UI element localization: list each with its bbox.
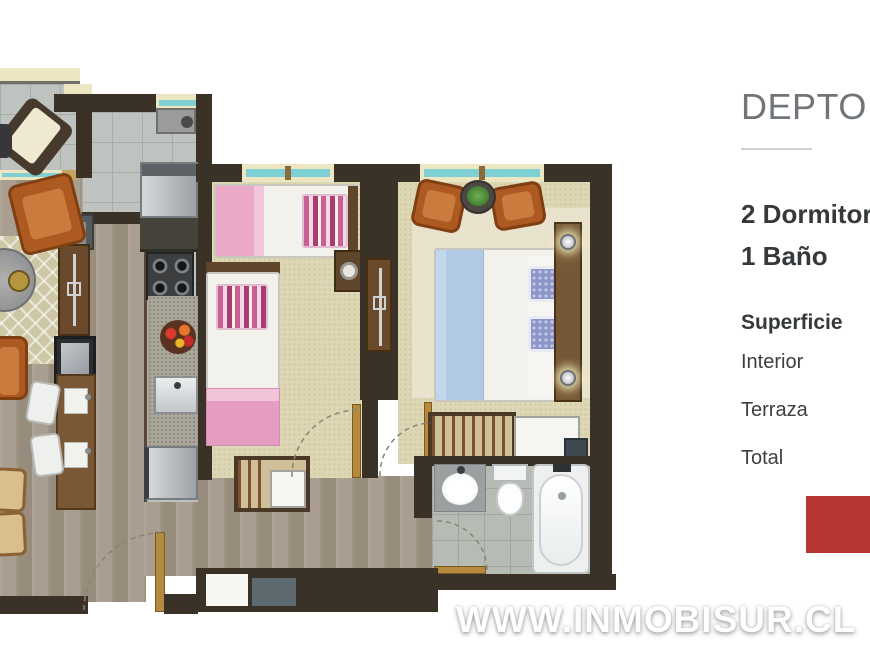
door-swing-arcs <box>0 0 700 650</box>
surface-row-total: Total <box>741 447 783 470</box>
entrance-door-arc <box>84 533 161 610</box>
bedrooms-count: 2 Dormitorios <box>741 199 870 230</box>
surface-row-terraza: Terraza <box>741 399 808 422</box>
surface-row-interior: Interior <box>741 351 803 374</box>
bathroom-door-arc <box>437 521 487 570</box>
bedroom2-door-arc <box>292 410 357 477</box>
flyer-page: DEPTO 54 2 Dormitorios 1 Baño Superficie… <box>0 0 870 650</box>
logo-red-square <box>806 496 870 553</box>
floor-plan <box>0 0 700 650</box>
surface-heading: Superficie <box>741 311 843 335</box>
title-divider <box>741 148 812 150</box>
watermark: WWW.INMOBISUR.CL <box>456 599 856 641</box>
master-door-arc <box>380 423 431 476</box>
unit-title: DEPTO 54 <box>741 86 870 128</box>
bathrooms-count: 1 Baño <box>741 241 828 272</box>
